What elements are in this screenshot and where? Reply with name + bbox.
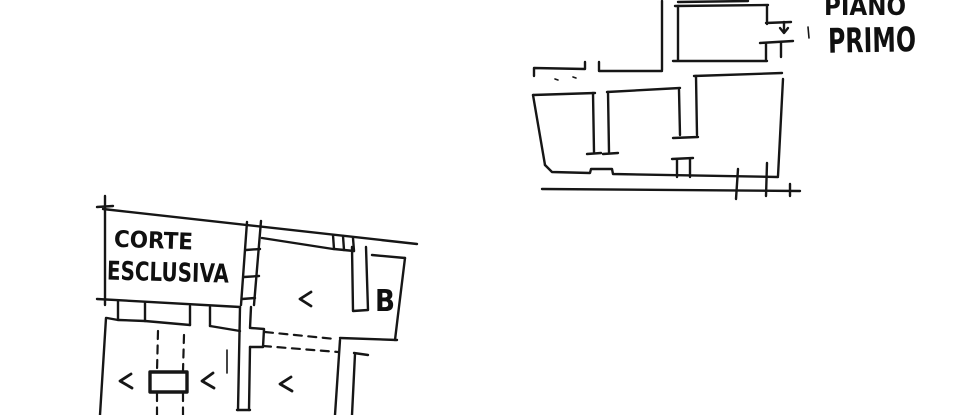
plan-stroke bbox=[678, 1, 748, 2]
plan-stroke bbox=[333, 235, 334, 249]
plan-stroke bbox=[340, 338, 397, 340]
plan-stroke bbox=[760, 41, 793, 43]
plan-stroke bbox=[244, 276, 259, 277]
plan-stroke bbox=[150, 372, 187, 392]
plan-stroke bbox=[555, 79, 558, 80]
courtyard-label-corte: CORTE bbox=[114, 227, 194, 256]
plan-stroke bbox=[542, 189, 800, 191]
plan-stroke bbox=[250, 307, 251, 328]
plan-stroke bbox=[145, 321, 190, 325]
plan-stroke bbox=[573, 77, 576, 78]
plan-stroke bbox=[238, 307, 240, 410]
plan-stroke bbox=[533, 93, 595, 95]
plan-stroke bbox=[280, 377, 292, 391]
plan-stroke bbox=[603, 153, 618, 154]
plan-stroke bbox=[265, 332, 335, 339]
plan-stroke bbox=[343, 236, 344, 250]
plan-stroke bbox=[533, 95, 545, 165]
plan-stroke bbox=[249, 347, 250, 410]
plan-stroke bbox=[372, 255, 405, 258]
plan-stroke bbox=[250, 328, 264, 347]
plan-stroke bbox=[242, 298, 255, 299]
scanned-floor-plan-page: { "canvas": {"width": 960, "height": 415… bbox=[0, 0, 960, 415]
plan-stroke bbox=[100, 318, 106, 415]
plan-stroke bbox=[352, 247, 368, 311]
plan-stroke bbox=[736, 169, 738, 199]
plan-stroke bbox=[675, 5, 768, 6]
plan-stroke bbox=[545, 165, 778, 177]
floor-label-primo: PRIMO bbox=[828, 20, 917, 62]
plan-stroke bbox=[119, 320, 145, 321]
plan-stroke bbox=[587, 153, 601, 154]
plan-stroke bbox=[97, 206, 113, 207]
plan-stroke bbox=[679, 90, 680, 135]
plan-stroke bbox=[241, 222, 247, 305]
plan-stroke bbox=[766, 22, 791, 23]
floor-label-piano: PIANO bbox=[824, 0, 906, 22]
plan-stroke bbox=[246, 249, 260, 250]
plan-stroke bbox=[300, 292, 311, 306]
plan-stroke bbox=[262, 238, 333, 249]
plan-stroke bbox=[157, 331, 158, 371]
plan-stroke bbox=[673, 137, 698, 138]
plan-stroke bbox=[395, 258, 405, 340]
plan-stroke bbox=[599, 62, 662, 71]
courtyard-label-esclusiva: ESCLUSIVA bbox=[107, 256, 230, 289]
floor-plan-scan: PIANO PRIMO CORTE ESCLUSIVA B bbox=[0, 0, 960, 415]
upper-floor-plan bbox=[533, 1, 809, 199]
plan-stroke bbox=[120, 374, 132, 388]
plan-stroke bbox=[607, 88, 680, 92]
plan-stroke bbox=[210, 326, 240, 331]
plan-stroke bbox=[696, 76, 697, 135]
plan-stroke bbox=[352, 354, 355, 415]
plan-stroke bbox=[263, 346, 338, 352]
plan-stroke bbox=[202, 373, 214, 388]
plan-stroke bbox=[107, 318, 118, 320]
plan-stroke bbox=[254, 221, 261, 305]
plan-stroke bbox=[808, 27, 809, 38]
plan-stroke bbox=[534, 62, 585, 76]
plan-stroke bbox=[766, 163, 767, 196]
plan-stroke bbox=[183, 335, 184, 371]
floor-plan-canvas: PIANO PRIMO CORTE ESCLUSIVA B bbox=[0, 0, 960, 415]
plan-stroke bbox=[593, 93, 594, 152]
plan-stroke bbox=[778, 79, 783, 176]
plan-stroke bbox=[608, 92, 609, 152]
plan-stroke bbox=[694, 73, 782, 76]
room-b-label: B bbox=[375, 284, 395, 319]
